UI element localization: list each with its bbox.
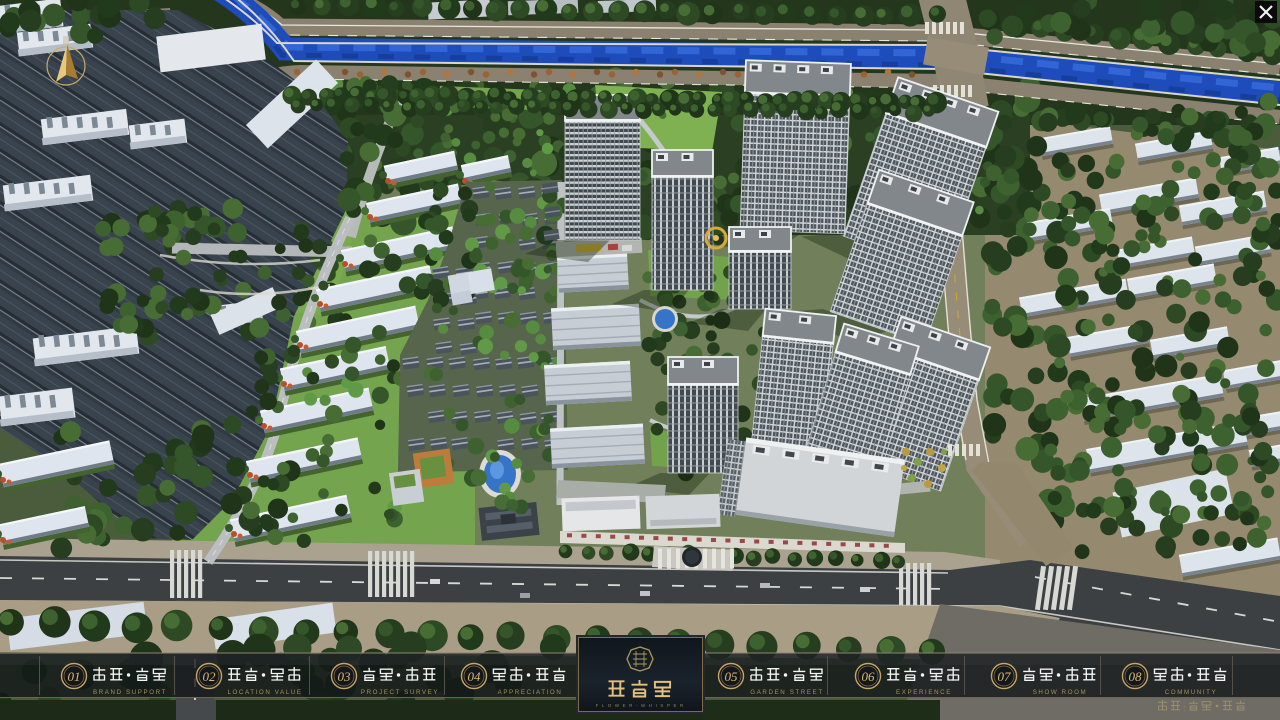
svg-text:PROJECT SURVEY: PROJECT SURVEY: [361, 689, 439, 696]
svg-text:APPRECIATION: APPRECIATION: [498, 689, 563, 696]
svg-text:07: 07: [998, 669, 1012, 684]
svg-text:06: 06: [862, 669, 876, 684]
svg-text:01: 01: [68, 669, 81, 684]
svg-text:F L O W E R - W H I S P E R: F L O W E R - W H I S P E R: [596, 703, 685, 708]
svg-text:05: 05: [725, 669, 739, 684]
svg-text::: :: [1183, 703, 1186, 713]
svg-text:04: 04: [468, 669, 482, 684]
svg-text:SHOW ROOM: SHOW ROOM: [1033, 689, 1088, 696]
svg-text:08: 08: [1129, 669, 1143, 684]
svg-text:03: 03: [338, 669, 352, 684]
svg-text:BRAND SUPPORT: BRAND SUPPORT: [93, 689, 167, 696]
svg-text:COMMUNITY: COMMUNITY: [1165, 689, 1218, 696]
svg-text:02: 02: [203, 669, 217, 684]
svg-text:EXPERIENCE: EXPERIENCE: [896, 689, 952, 696]
svg-text:GARDEN STREET: GARDEN STREET: [750, 689, 823, 696]
svg-text:LOCATION VALUE: LOCATION VALUE: [227, 689, 302, 696]
